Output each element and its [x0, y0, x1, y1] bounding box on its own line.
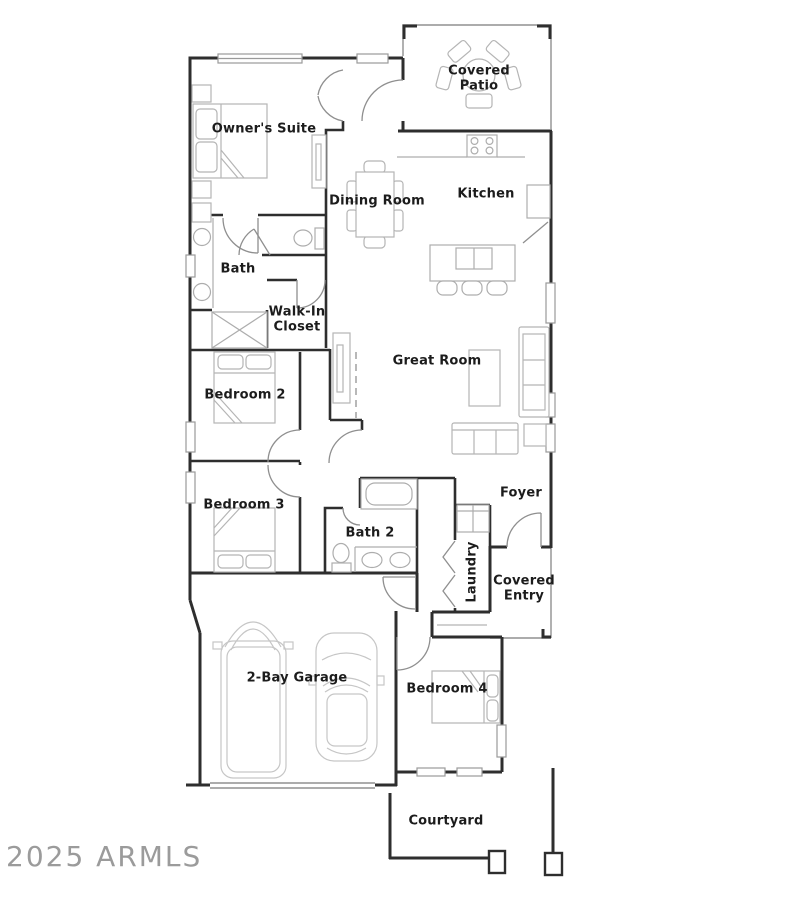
car-hood: [322, 653, 371, 660]
pillow: [246, 355, 271, 369]
sink: [194, 284, 211, 301]
refrigerator: [527, 185, 550, 218]
room-label-laundry: Laundry: [466, 541, 481, 602]
media-console-inner: [337, 345, 343, 392]
nightstand: [192, 85, 211, 102]
room-label-bath: Bath: [221, 263, 256, 278]
laundry-bifold-doors: [443, 541, 455, 607]
room-label-great-room: Great Room: [393, 355, 482, 370]
pillow: [487, 675, 498, 697]
patio-post-bracket-left: [404, 26, 417, 39]
toilet-tank: [332, 563, 351, 572]
toilet-bowl: [294, 230, 312, 246]
patio-chair: [485, 39, 510, 63]
car-roof: [327, 694, 367, 746]
room-label-covered-entry: Covered Entry: [488, 574, 560, 603]
room-label-dining-room: Dining Room: [329, 195, 425, 210]
courtyard-post: [489, 851, 505, 873]
front-door: [507, 513, 541, 547]
side-table: [524, 424, 546, 446]
suite-double-door: [318, 70, 343, 121]
car-body: [316, 633, 377, 761]
room-label-kitchen: Kitchen: [457, 188, 514, 203]
toilet-tank: [315, 228, 324, 249]
sofa-south: [452, 423, 518, 454]
suite-builtin-inner: [316, 144, 321, 180]
bath2-door: [343, 508, 360, 525]
nightstand: [192, 181, 211, 198]
vanity-counter: [355, 547, 417, 572]
dining-chair: [364, 161, 385, 173]
hall-arch-door: [329, 430, 362, 463]
room-label-covered-patio: Covered Patio: [443, 64, 515, 93]
bar-stool: [487, 281, 507, 295]
bedroom4-furniture: [432, 625, 500, 723]
toilet-room-door: [239, 229, 270, 255]
patio-door: [362, 80, 403, 121]
window-bedroom4-south1: [417, 768, 445, 776]
bedroom3-furniture: [214, 508, 275, 572]
room-label-bath-2: Bath 2: [346, 527, 395, 542]
courtyard-post: [545, 853, 562, 875]
room-label-foyer: Foyer: [500, 487, 542, 502]
garage-vehicles: [213, 622, 384, 778]
window-bedroom4-south2: [457, 768, 482, 776]
owners-suite-furniture: [192, 85, 326, 222]
window-dining-top: [357, 54, 388, 63]
pillow: [246, 555, 271, 568]
truck-mirror: [213, 642, 222, 649]
car-mirror: [377, 676, 384, 685]
window-bath-west: [186, 255, 195, 277]
bar-stool: [437, 281, 457, 295]
bar-stool: [462, 281, 482, 295]
pillow: [196, 142, 217, 172]
room-label-garage: 2-Bay Garage: [247, 672, 348, 687]
sink: [194, 229, 211, 246]
room-label-owners-suite: Owner's Suite: [212, 123, 317, 138]
kitchen-fixtures: [397, 135, 550, 295]
room-label-bedroom-4: Bedroom 4: [406, 683, 487, 698]
bedroom4-door: [397, 637, 430, 670]
laundry-fixtures: [457, 505, 489, 532]
sink: [362, 553, 382, 568]
pillow: [218, 555, 243, 568]
window-greatroom-east1: [546, 283, 555, 323]
entry-post-bracket: [543, 629, 551, 637]
patio-chair: [447, 39, 472, 63]
pillow: [218, 355, 243, 369]
toilet-bowl: [333, 544, 349, 563]
bedroom2-door: [268, 430, 300, 462]
floor-plan-drawing: [0, 0, 800, 904]
garage-door-sill: [210, 783, 375, 788]
car-rear-window: [327, 748, 366, 754]
room-label-courtyard: Courtyard: [408, 815, 483, 830]
dresser: [192, 203, 211, 222]
room-label-bedroom-2: Bedroom 2: [204, 389, 285, 404]
window-bedroom2-west: [186, 422, 195, 452]
patio-chair: [466, 94, 492, 108]
sink: [390, 553, 410, 568]
room-label-walk-in-closet: Walk-In Closet: [261, 305, 333, 334]
patio-post-bracket-right: [537, 26, 550, 39]
garage-entry-door: [383, 577, 415, 609]
armls-watermark: 2025 ARMLS: [6, 840, 202, 873]
dining-chair: [364, 236, 385, 248]
window-bedroom4-east: [497, 725, 506, 757]
window-bedroom3-west: [186, 472, 195, 503]
pillow: [487, 700, 498, 721]
room-label-bedroom-3: Bedroom 3: [203, 499, 284, 514]
stove: [467, 135, 497, 157]
truck-cab: [225, 622, 281, 650]
great-room-furniture: [333, 327, 549, 454]
truck-body-inner: [227, 647, 280, 772]
bedroom3-door: [268, 465, 300, 497]
kitchen-pantry-door: [523, 222, 548, 243]
window-greatroom-east3: [546, 424, 555, 452]
floor-plan-page: Covered Patio Owner's Suite Dining Room …: [0, 0, 800, 904]
truck-body: [221, 641, 286, 778]
